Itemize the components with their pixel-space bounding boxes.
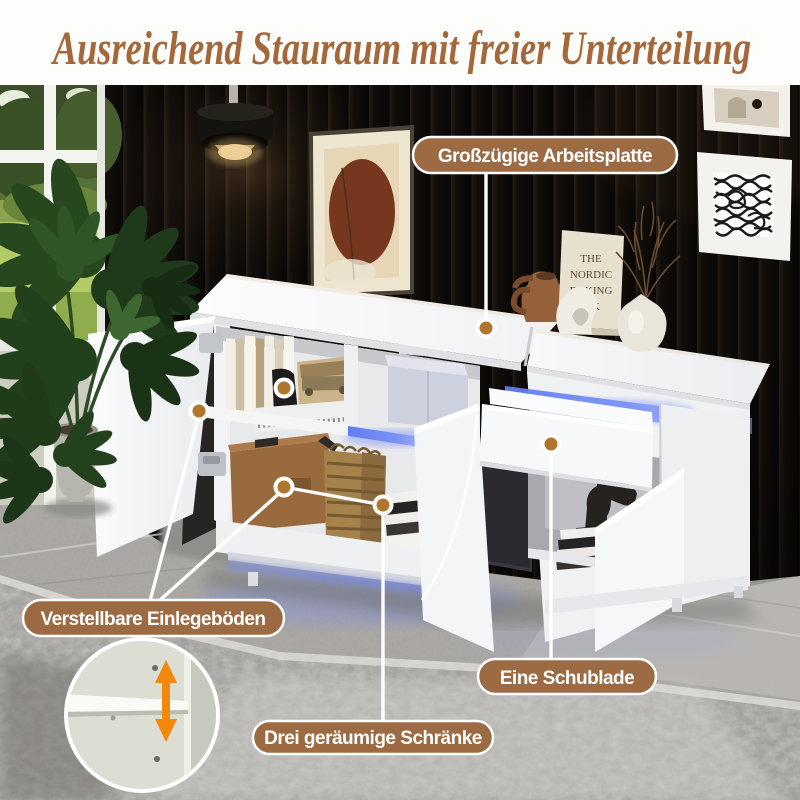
svg-text:Eine Schublade: Eine Schublade (500, 668, 634, 689)
svg-text:NORDIC: NORDIC (570, 269, 612, 281)
svg-text:Verstellbare Einlegeböden: Verstellbare Einlegeböden (40, 609, 265, 630)
svg-text:Ausreichend Stauraum mit freie: Ausreichend Stauraum mit freier Untertei… (50, 22, 751, 75)
svg-text:Großzügige Arbeitsplatte: Großzügige Arbeitsplatte (438, 146, 652, 167)
svg-text:Drei geräumige Schränke: Drei geräumige Schränke (264, 728, 482, 749)
svg-text:THE: THE (580, 253, 602, 265)
